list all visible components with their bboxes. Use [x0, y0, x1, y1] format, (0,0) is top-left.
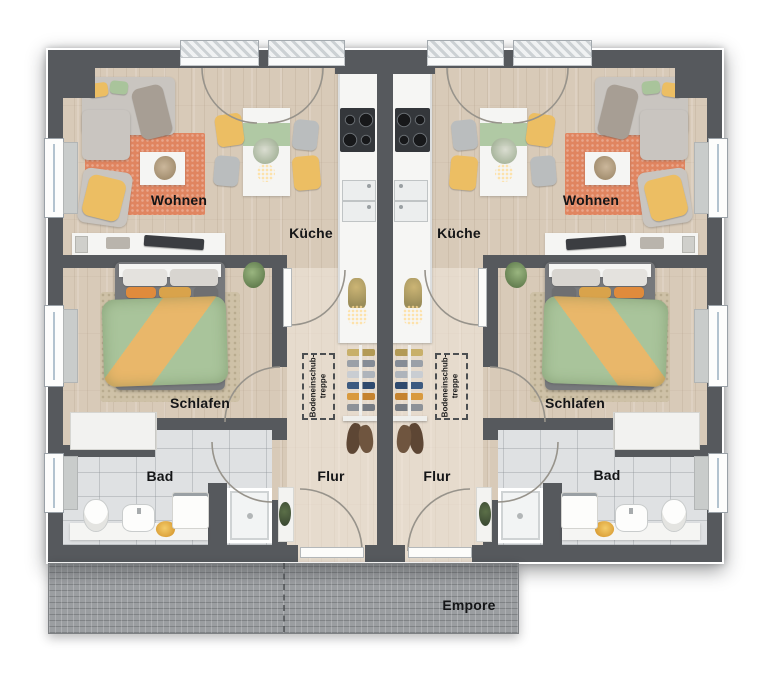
window-sill-board: [63, 142, 78, 214]
window-sill: [180, 57, 259, 66]
window: [708, 138, 728, 218]
attic-hatch-label-line2: treppe: [450, 355, 460, 418]
entrance-door: [408, 547, 472, 558]
window-sill-board: [63, 309, 78, 383]
window-sill-board: [694, 142, 709, 214]
entrance-door: [300, 547, 364, 558]
room-label-bedroom-right: Schlafen: [545, 395, 605, 411]
window: [708, 453, 728, 513]
room-label-bedroom-left: Schlafen: [170, 395, 230, 411]
room-label-hall-right: Flur: [423, 468, 450, 484]
window: [44, 305, 64, 387]
attic-hatch-label-line1: Bodeneinschub-: [309, 355, 319, 418]
top-wall-center-block: [335, 50, 435, 74]
bottom-wall: [48, 545, 298, 562]
floor-plan: Wohnen Küche Schlafen Bad Flur Wohnen Kü…: [0, 0, 775, 692]
window-sill: [513, 57, 592, 66]
gallery-divider: [283, 563, 285, 632]
bottom-wall: [365, 545, 405, 562]
room-label-bath-right: Bad: [593, 467, 620, 483]
kitchen-hall-door: [478, 268, 487, 327]
window-sill-board: [694, 456, 709, 510]
window-sill: [268, 57, 345, 66]
window-sill-board: [694, 309, 709, 383]
door-swing-arcs: [48, 50, 377, 562]
room-label-kitchen-right: Küche: [437, 225, 481, 241]
room-label-hall-left: Flur: [317, 468, 344, 484]
party-wall: [377, 50, 393, 562]
attic-hatch-label-left: Bodeneinschub- treppe: [309, 355, 328, 418]
attic-hatch-label-line1: Bodeneinschub-: [441, 355, 451, 418]
door-swing-arcs: [393, 50, 722, 562]
unit-left: [48, 50, 377, 562]
unit-right: [393, 50, 722, 562]
window-sill-board: [63, 456, 78, 510]
kitchen-hall-door: [283, 268, 292, 327]
attic-hatch-label-right: Bodeneinschub- treppe: [441, 355, 460, 418]
attic-hatch-label-line2: treppe: [318, 355, 328, 418]
window-sill: [427, 57, 504, 66]
window: [708, 305, 728, 387]
room-label-kitchen-left: Küche: [289, 225, 333, 241]
room-label-bath-left: Bad: [146, 468, 173, 484]
window: [44, 453, 64, 513]
gallery-label: Empore: [442, 597, 495, 613]
bottom-wall: [472, 545, 722, 562]
room-label-living-left: Wohnen: [151, 192, 207, 208]
window: [44, 138, 64, 218]
room-label-living-right: Wohnen: [563, 192, 619, 208]
